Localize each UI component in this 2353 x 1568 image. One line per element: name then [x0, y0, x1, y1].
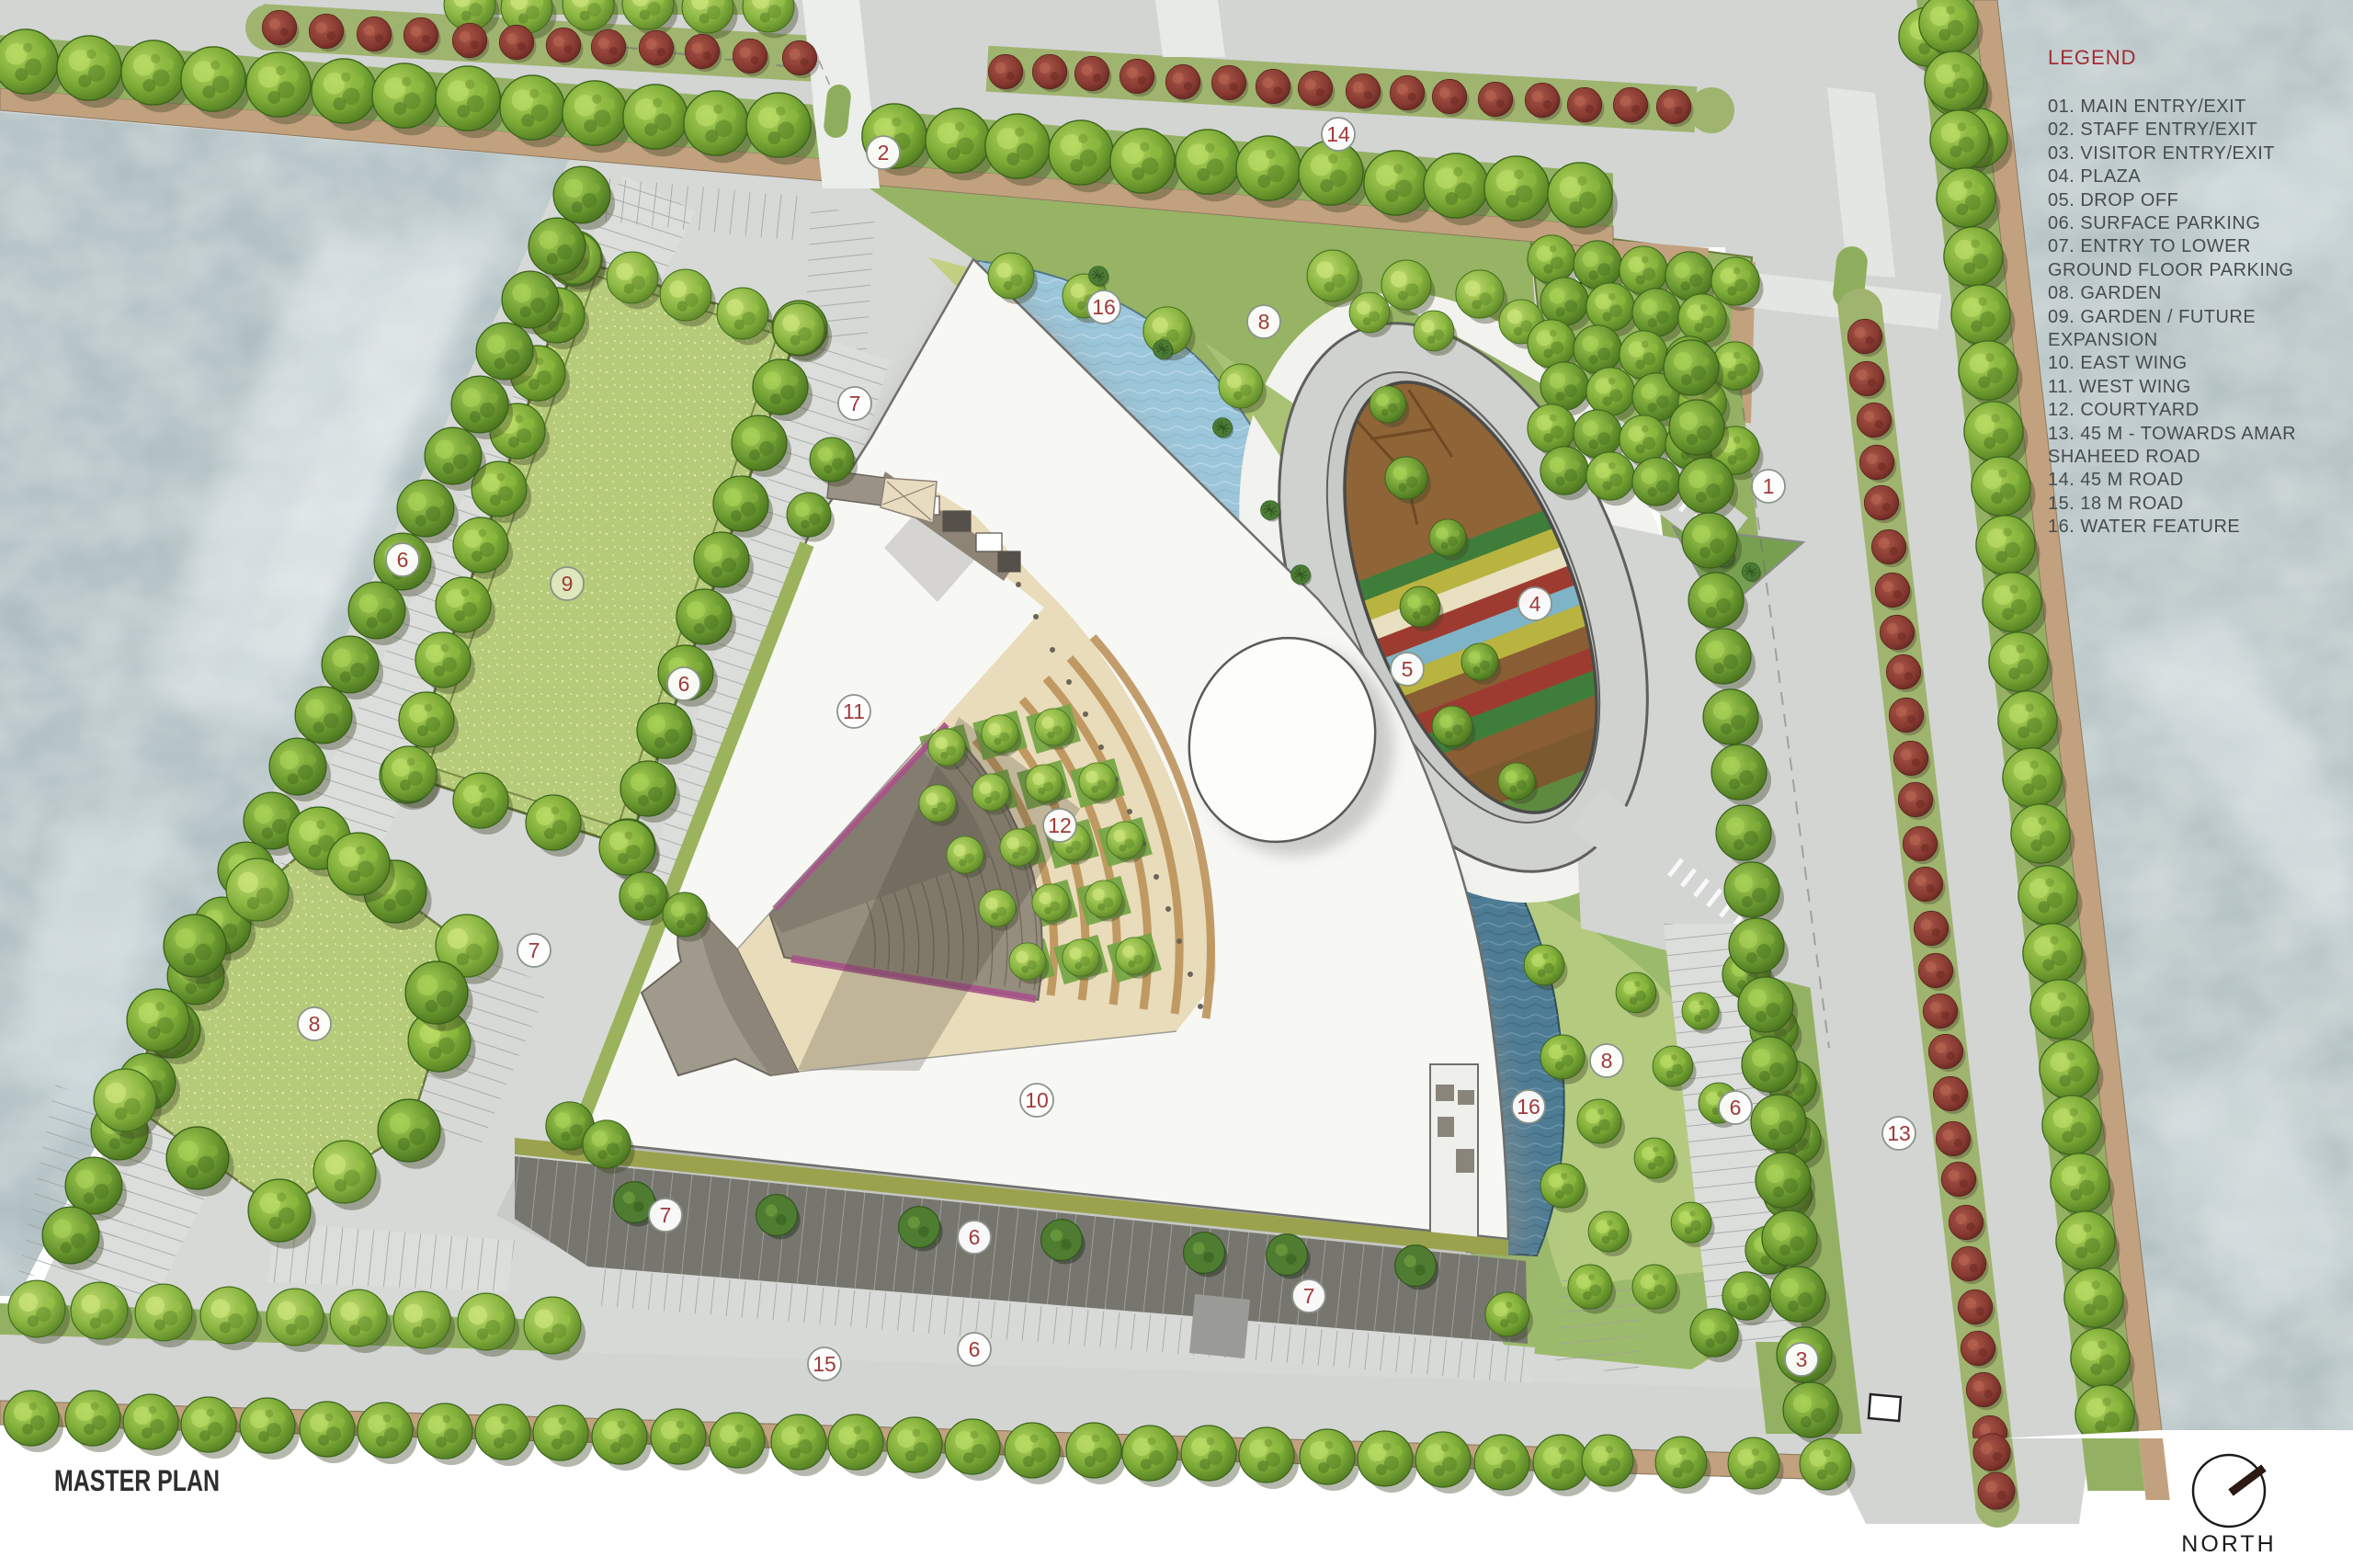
- svg-text:8: 8: [1258, 310, 1270, 334]
- svg-text:02. STAFF ENTRY/EXIT: 02. STAFF ENTRY/EXIT: [2048, 119, 2257, 140]
- svg-text:09. GARDEN / FUTURE: 09. GARDEN / FUTURE: [2048, 307, 2256, 327]
- svg-text:5: 5: [1402, 657, 1414, 681]
- svg-text:16: 16: [1092, 295, 1116, 319]
- svg-text:7: 7: [1303, 1284, 1315, 1308]
- svg-text:4: 4: [1529, 592, 1541, 616]
- svg-text:11. WEST WING: 11. WEST WING: [2048, 377, 2191, 397]
- svg-text:07. ENTRY TO LOWER: 07. ENTRY TO LOWER: [2048, 236, 2251, 256]
- svg-text:8: 8: [309, 1012, 321, 1036]
- svg-text:7: 7: [529, 938, 540, 962]
- svg-text:MASTER PLAN: MASTER PLAN: [54, 1464, 220, 1497]
- svg-text:03. VISITOR ENTRY/EXIT: 03. VISITOR ENTRY/EXIT: [2048, 143, 2275, 164]
- svg-text:13. 45 M - TOWARDS AMAR: 13. 45 M - TOWARDS AMAR: [2048, 424, 2296, 444]
- svg-text:16: 16: [1517, 1095, 1540, 1119]
- svg-text:7: 7: [660, 1203, 672, 1227]
- svg-text:12: 12: [1048, 813, 1072, 837]
- svg-text:LEGEND: LEGEND: [2048, 46, 2136, 69]
- svg-text:6: 6: [397, 548, 409, 572]
- svg-text:13: 13: [1887, 1121, 1911, 1145]
- svg-text:01. MAIN ENTRY/EXIT: 01. MAIN ENTRY/EXIT: [2048, 97, 2246, 117]
- svg-text:NORTH: NORTH: [2181, 1531, 2276, 1557]
- svg-text:15: 15: [813, 1352, 836, 1376]
- svg-text:3: 3: [1796, 1347, 1808, 1371]
- svg-text:6: 6: [969, 1225, 981, 1249]
- svg-text:10. EAST WING: 10. EAST WING: [2048, 353, 2188, 373]
- svg-text:SHAHEED ROAD: SHAHEED ROAD: [2048, 447, 2200, 467]
- svg-text:06. SURFACE PARKING: 06. SURFACE PARKING: [2048, 213, 2260, 233]
- svg-text:05. DROP OFF: 05. DROP OFF: [2048, 190, 2178, 210]
- svg-text:1: 1: [1763, 474, 1775, 498]
- svg-text:08. GARDEN: 08. GARDEN: [2048, 283, 2162, 303]
- svg-text:10: 10: [1025, 1088, 1049, 1112]
- svg-text:14: 14: [1326, 122, 1350, 146]
- svg-text:GROUND FLOOR PARKING: GROUND FLOOR PARKING: [2048, 260, 2293, 280]
- svg-text:04. PLAZA: 04. PLAZA: [2048, 166, 2141, 187]
- svg-text:6: 6: [1730, 1096, 1742, 1119]
- svg-text:6: 6: [678, 672, 690, 696]
- svg-text:11: 11: [843, 699, 865, 723]
- svg-text:9: 9: [562, 572, 574, 596]
- svg-text:8: 8: [1601, 1049, 1613, 1073]
- svg-text:6: 6: [969, 1337, 981, 1361]
- svg-text:15. 18 M ROAD: 15. 18 M ROAD: [2048, 494, 2184, 514]
- svg-text:2: 2: [878, 141, 890, 165]
- svg-text:16. WATER FEATURE: 16. WATER FEATURE: [2048, 517, 2240, 537]
- svg-text:7: 7: [849, 392, 861, 415]
- svg-text:12. COURTYARD: 12. COURTYARD: [2048, 400, 2200, 420]
- svg-text:EXPANSION: EXPANSION: [2048, 330, 2158, 350]
- svg-text:14. 45 M ROAD: 14. 45 M ROAD: [2048, 470, 2184, 490]
